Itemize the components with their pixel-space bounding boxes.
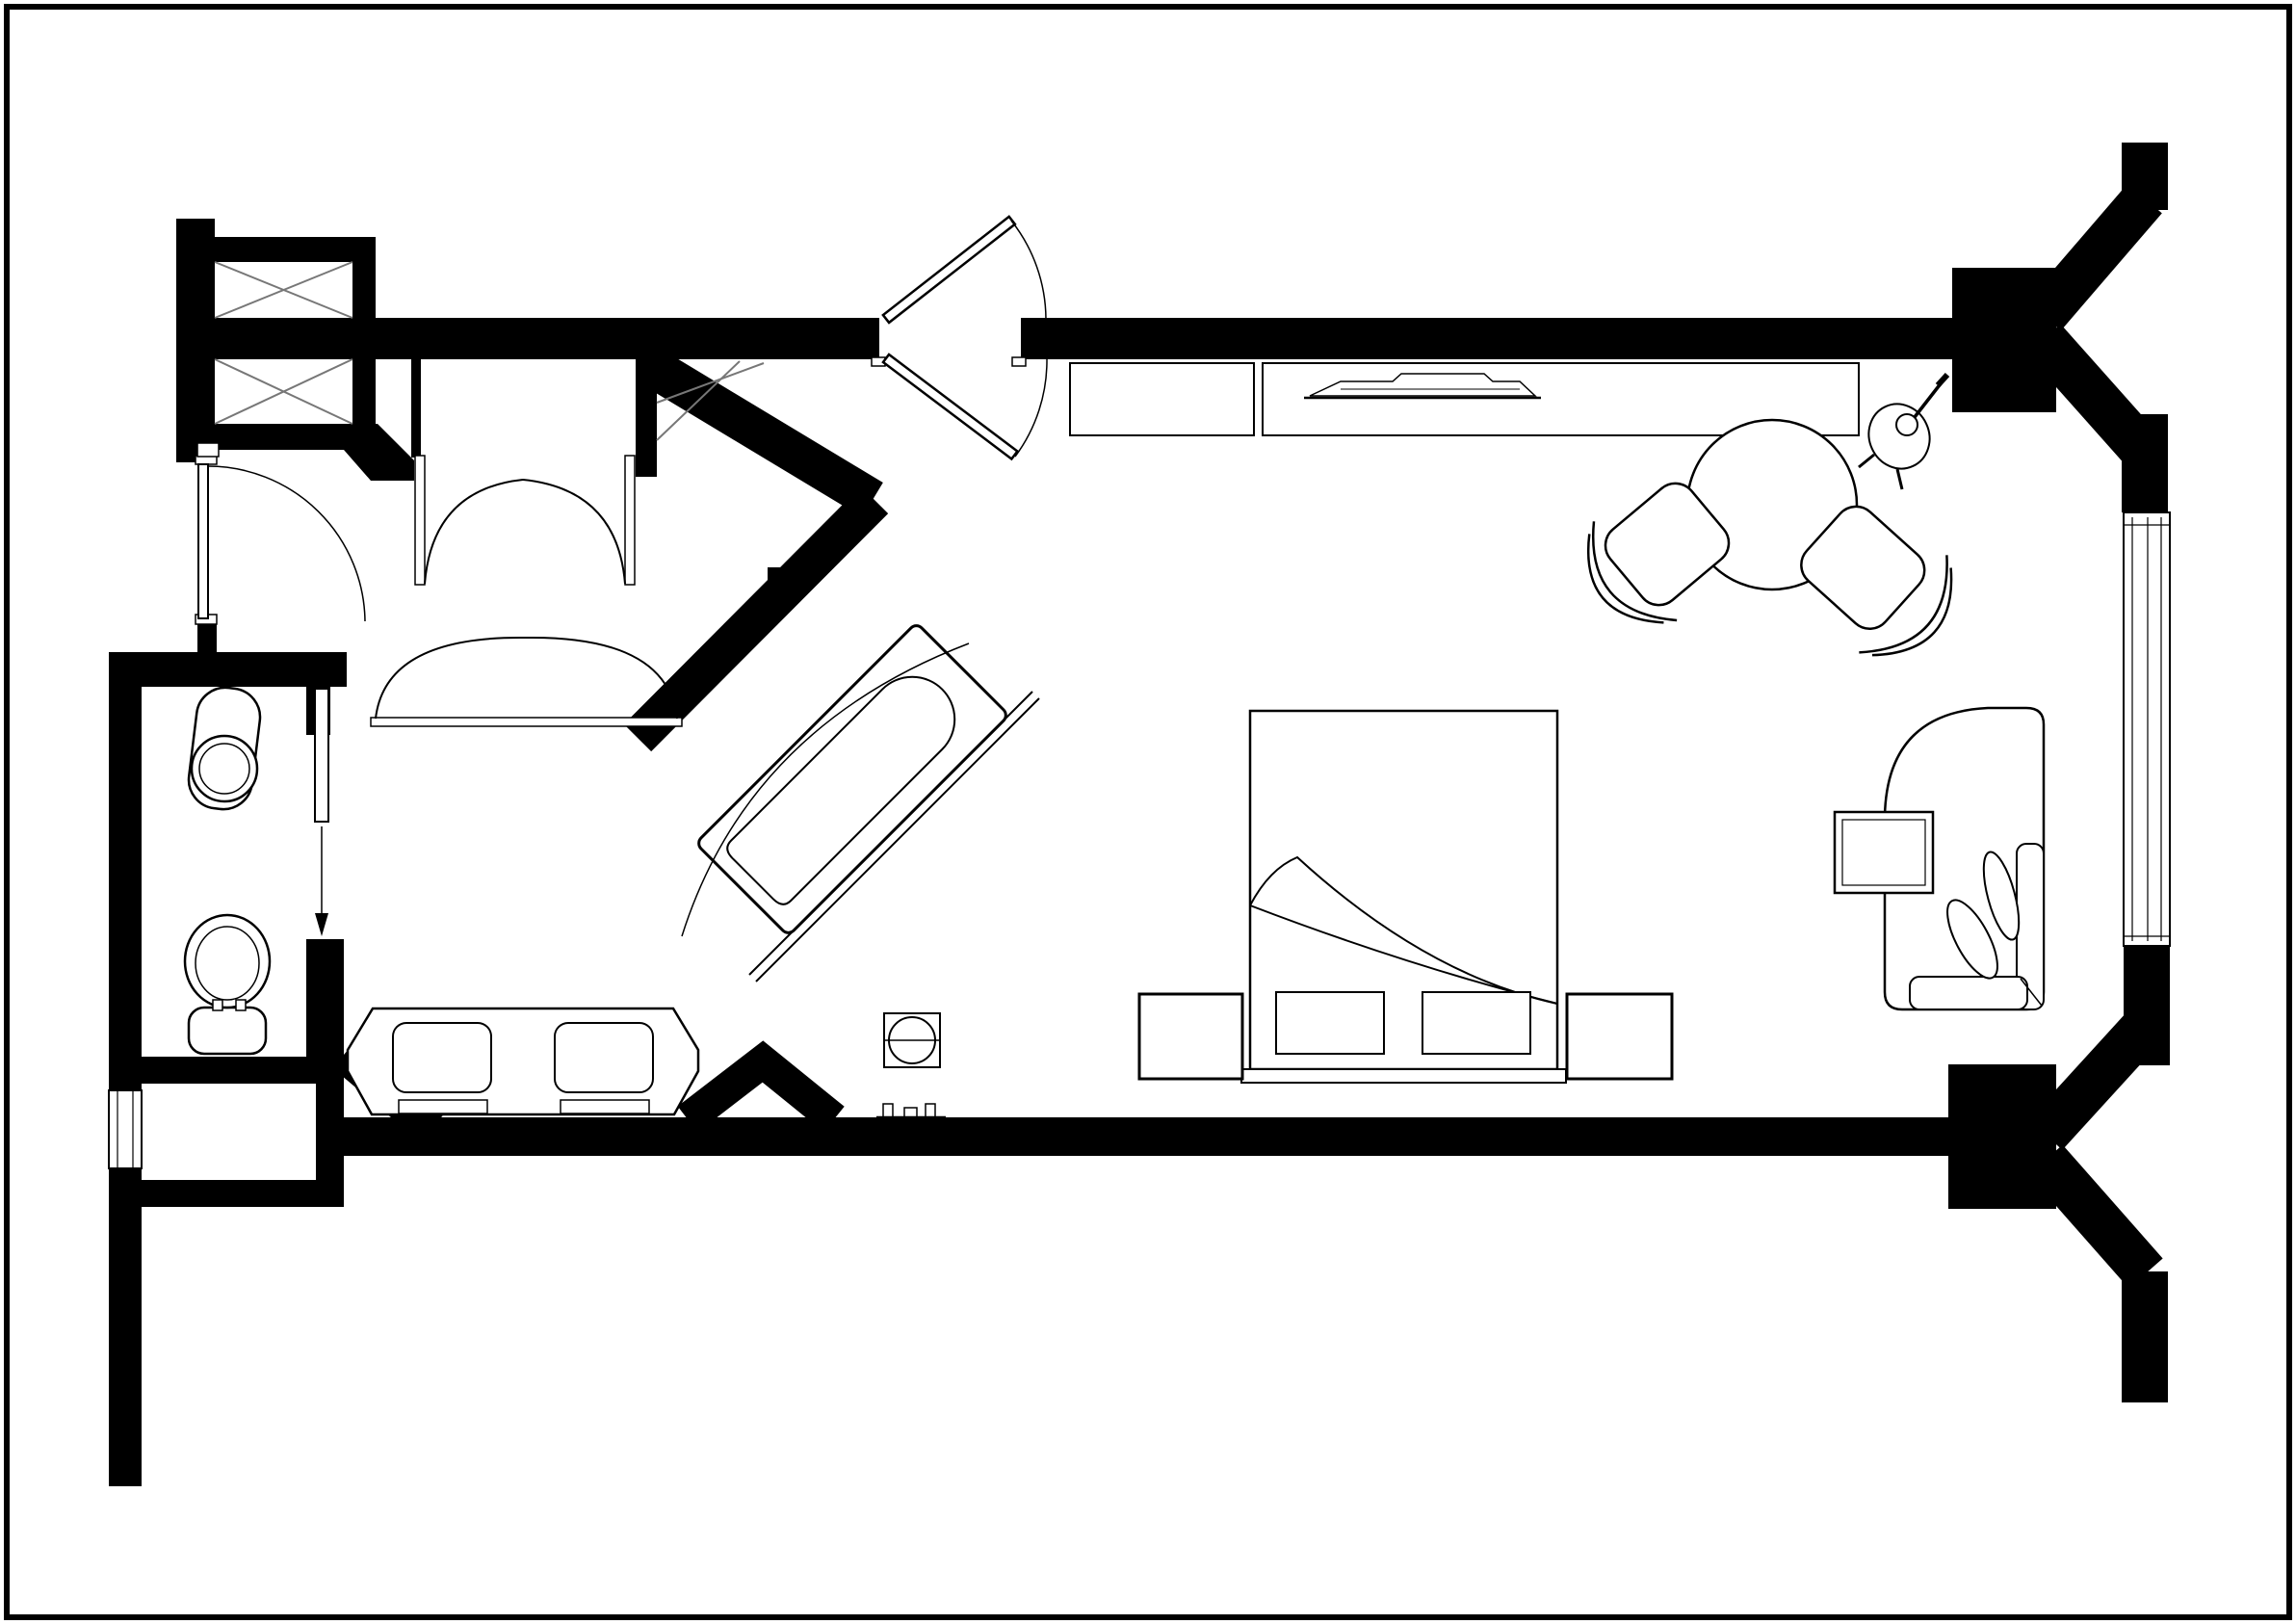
toilet-tank	[189, 1008, 266, 1054]
floor-socket-1	[883, 1104, 893, 1117]
pocket-door-leaf	[315, 689, 328, 822]
west-outer-wall-upper	[109, 652, 142, 1090]
top-wall-east	[1021, 318, 2015, 359]
closet-south-wall	[109, 1180, 344, 1207]
entry-door-jamb-right	[1012, 357, 1026, 366]
sofa-front-panel-left	[399, 1100, 487, 1113]
floor-lamp-rod-tip	[1938, 375, 1947, 385]
closet-door-arc-left	[425, 480, 523, 584]
bathroom-south-wall	[138, 1057, 344, 1084]
floor-lamp-leg-2	[1897, 469, 1902, 489]
se-bay-arm-upper	[2046, 1025, 2146, 1135]
sofa-front-panel-right	[561, 1100, 649, 1113]
floor-plan-svg	[0, 0, 2296, 1624]
bathroom-east-wall-lower	[306, 939, 344, 1059]
hall-door-swing-arc	[208, 466, 365, 621]
pocket-door-arrow-head	[315, 913, 328, 936]
closet-door-jamb-right	[625, 456, 635, 585]
entry-step-wall	[344, 424, 414, 481]
west-outer-wall-strip	[109, 1207, 142, 1486]
bottom-wall	[344, 1117, 1955, 1156]
wardrobe-door-arc-left	[376, 638, 526, 719]
wardrobe-door-panel	[371, 718, 682, 726]
hall-door-head-block	[197, 443, 219, 457]
entry-door-leaf-in	[883, 354, 1017, 458]
ne-bay-arm-upper	[2044, 198, 2145, 316]
toilet-hinge-right	[236, 1000, 246, 1010]
entry-door-leaf-out	[883, 217, 1015, 323]
floor-socket-2	[904, 1108, 917, 1117]
floor-lamp-base	[1859, 394, 1941, 479]
bed-pillow-right	[1422, 992, 1530, 1054]
storage-window	[109, 1090, 142, 1168]
entry-door-swing-arc-in	[1015, 358, 1047, 457]
bed-headboard	[1241, 1069, 1566, 1083]
lounge-chaise-seat-edge	[1910, 977, 2027, 1009]
dressing-ne-diagonal-wall	[647, 364, 873, 500]
se-pier-bottom	[2122, 1271, 2168, 1402]
closet-door-arc-right	[523, 480, 625, 584]
wall-below-entry-door	[197, 622, 217, 655]
toilet-hinge-left	[213, 1000, 222, 1010]
nightstand-right	[1567, 994, 1672, 1079]
floor-socket-3	[926, 1104, 935, 1117]
toilet-bowl	[185, 915, 270, 1008]
ne-pier-window-top	[2122, 414, 2168, 512]
sofa-cushion-right	[555, 1023, 653, 1092]
console-cabinet-small	[1070, 363, 1254, 435]
washbasin-bowl	[192, 736, 257, 801]
floor-plan-page	[0, 0, 2296, 1624]
side-table	[1835, 812, 1933, 893]
sofa-cushion-left	[393, 1023, 491, 1092]
dressing-south-gable-wall	[688, 1061, 834, 1119]
entry-door-swing-arc-out	[1011, 221, 1046, 319]
east-window-frame	[2124, 512, 2170, 946]
nightstand-left	[1139, 994, 1242, 1079]
top-wall-west	[176, 318, 879, 359]
se-bay-arm-lower	[2046, 1160, 2146, 1273]
floor-lamp-hub	[1896, 414, 1918, 435]
bed-pillow-left	[1276, 992, 1384, 1054]
floor-lamp-leg-1	[1859, 455, 1874, 467]
closet-door-jamb-left	[415, 456, 425, 585]
closet-alcove-west-wall	[411, 359, 421, 458]
hall-door-leaf	[198, 464, 208, 618]
shaft-north-wall	[176, 237, 376, 262]
floor-lamp-rod	[1915, 382, 1942, 417]
tub-wall-pilaster	[768, 567, 804, 594]
